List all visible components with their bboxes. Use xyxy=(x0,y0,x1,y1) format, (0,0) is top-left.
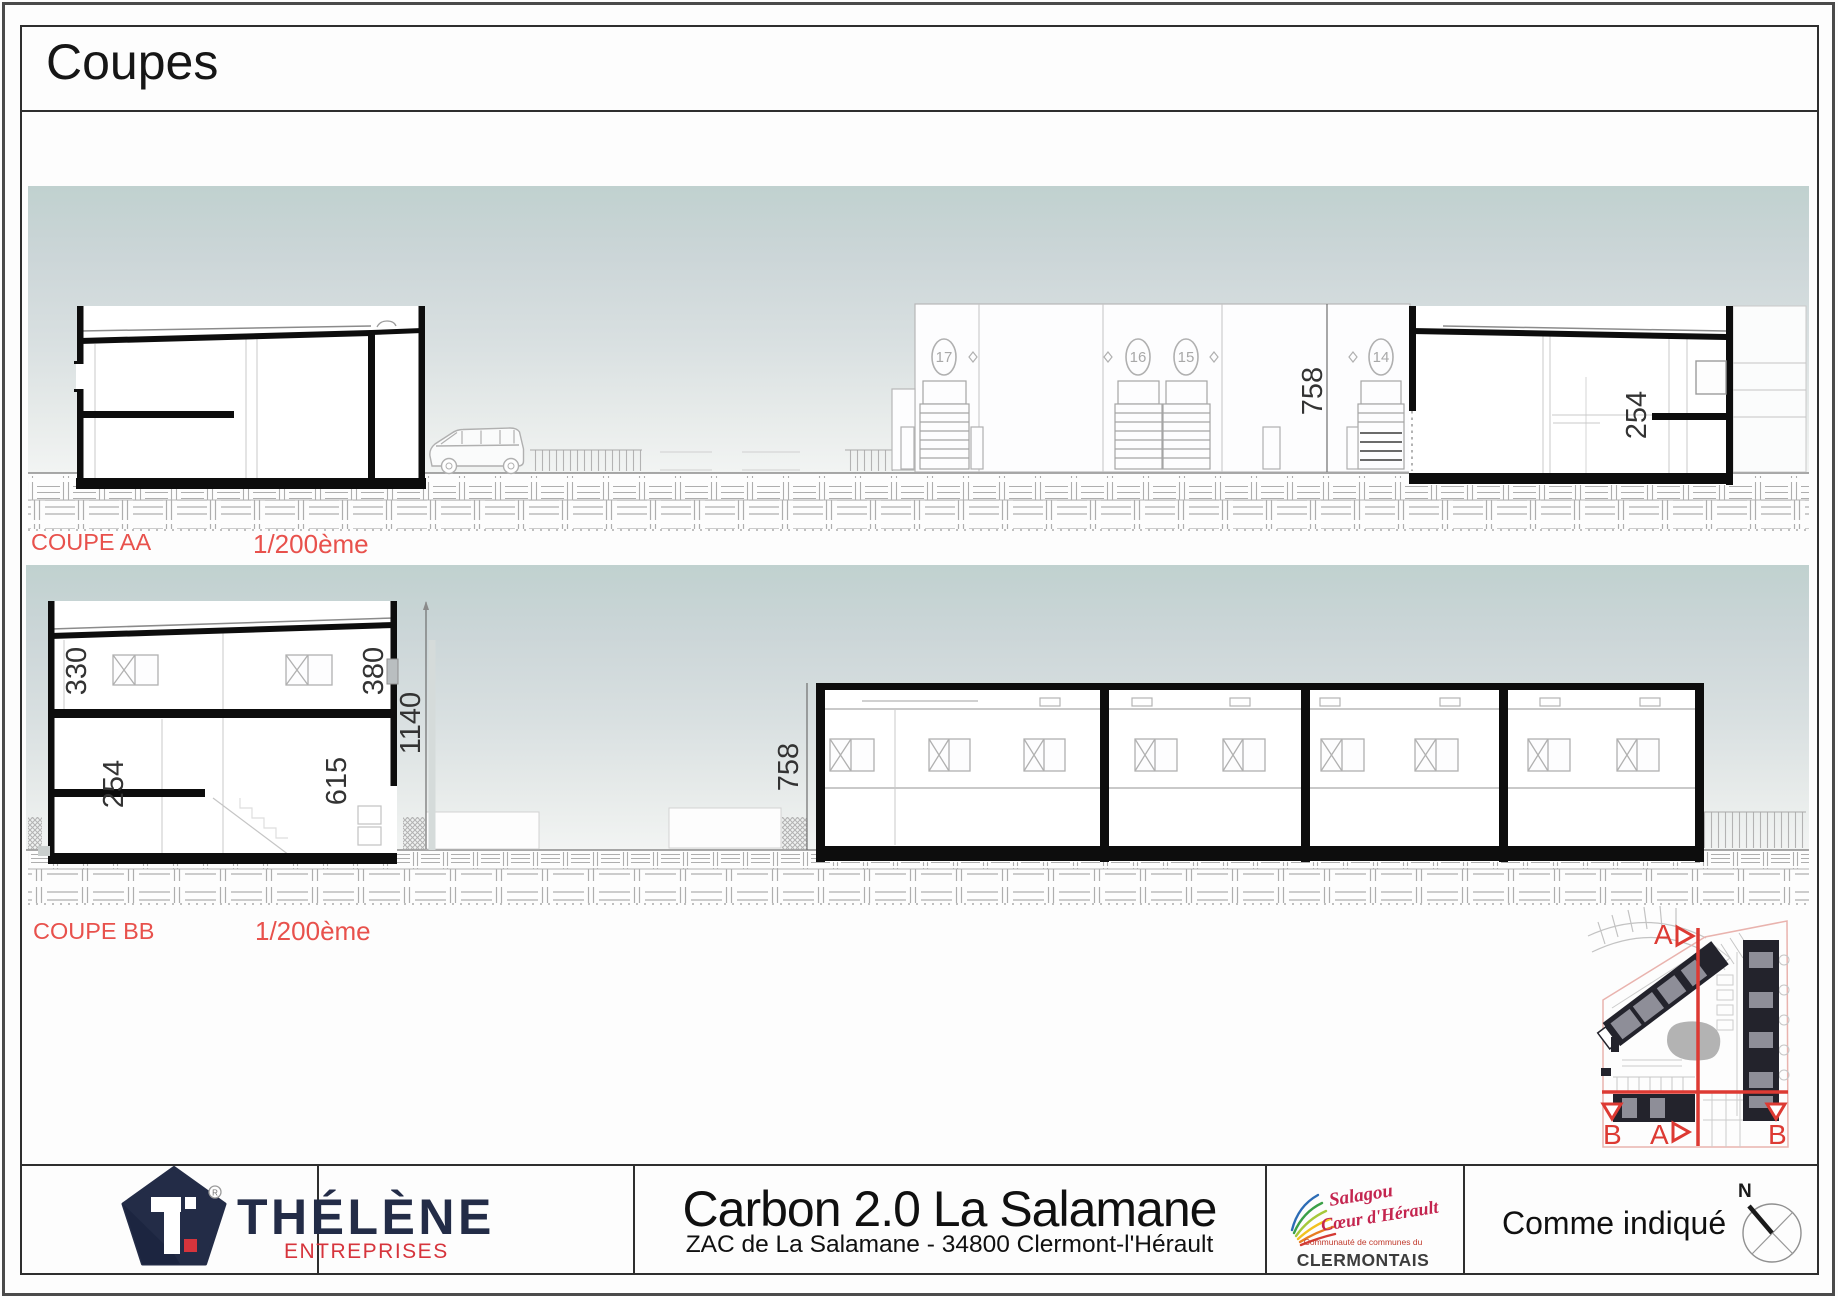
svg-text:17: 17 xyxy=(936,349,953,366)
svg-text:380: 380 xyxy=(358,647,390,695)
svg-text:Communauté de communes du: Communauté de communes du xyxy=(1304,1237,1423,1247)
svg-text:15: 15 xyxy=(1178,349,1195,366)
svg-text:CLERMONTAIS: CLERMONTAIS xyxy=(1297,1250,1430,1270)
svg-text:615: 615 xyxy=(321,757,353,805)
svg-text:A: A xyxy=(1654,919,1673,950)
svg-text:B: B xyxy=(1768,1119,1787,1150)
svg-text:COUPE BB: COUPE BB xyxy=(33,918,154,944)
svg-text:254: 254 xyxy=(1621,391,1653,439)
svg-text:14: 14 xyxy=(1373,349,1390,366)
svg-text:758: 758 xyxy=(1297,367,1329,415)
svg-text:254: 254 xyxy=(98,760,130,808)
svg-text:330: 330 xyxy=(61,647,93,695)
svg-text:A: A xyxy=(1650,1119,1669,1150)
svg-text:N: N xyxy=(1738,1181,1752,1202)
svg-text:COUPE AA: COUPE AA xyxy=(31,529,151,555)
svg-text:16: 16 xyxy=(1130,349,1147,366)
svg-text:758: 758 xyxy=(773,743,805,791)
svg-text:1/200ème: 1/200ème xyxy=(253,529,369,559)
svg-text:1140: 1140 xyxy=(395,692,427,754)
svg-text:1/200ème: 1/200ème xyxy=(255,916,371,946)
svg-text:R: R xyxy=(212,1189,218,1198)
svg-text:B: B xyxy=(1603,1119,1622,1150)
